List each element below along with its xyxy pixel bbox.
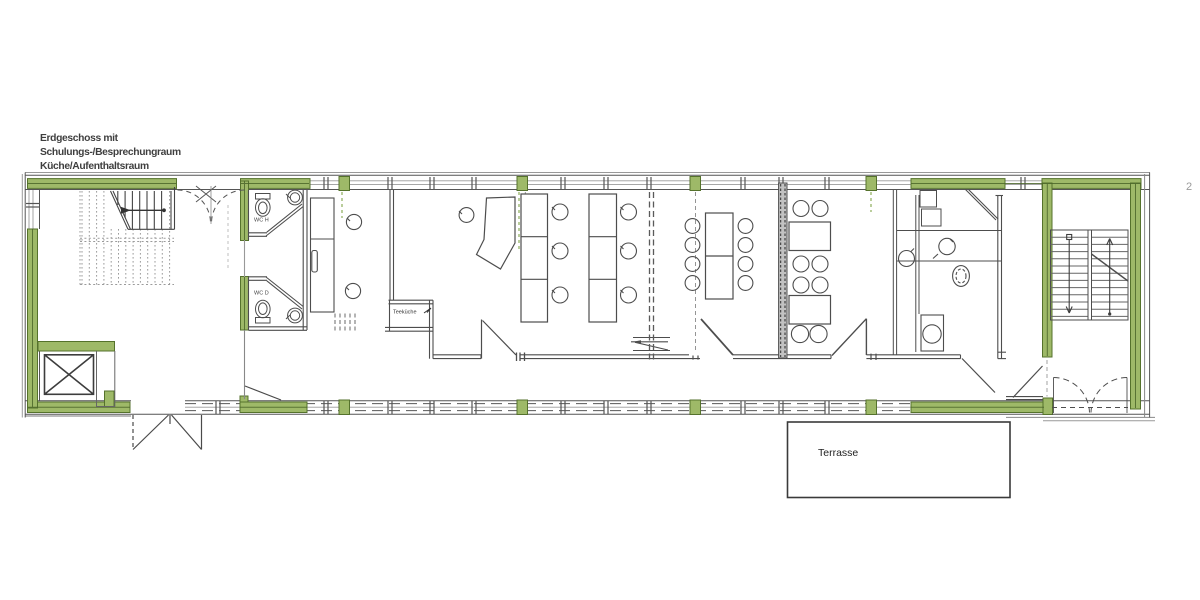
- svg-text:Schulungs-/Besprechungraum: Schulungs-/Besprechungraum: [40, 147, 181, 158]
- svg-text:Erdgeschoss mit: Erdgeschoss mit: [40, 133, 119, 144]
- svg-text:Teeküche: Teeküche: [393, 310, 417, 316]
- svg-text:WC H: WC H: [254, 218, 269, 224]
- svg-text:2: 2: [1186, 181, 1192, 193]
- svg-text:Küche/Aufenthaltsraum: Küche/Aufenthaltsraum: [40, 161, 149, 172]
- svg-text:Terrasse: Terrasse: [818, 447, 858, 459]
- svg-text:WC D: WC D: [254, 291, 269, 297]
